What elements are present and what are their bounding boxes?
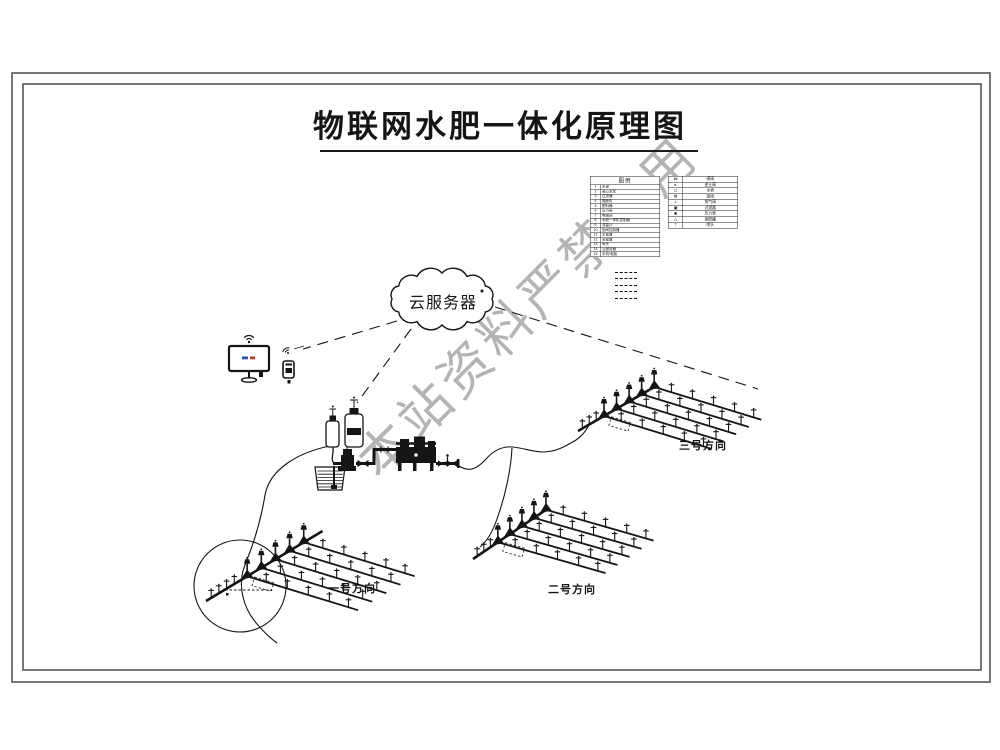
monitor-icon bbox=[229, 336, 269, 383]
field-grid-1 bbox=[206, 523, 415, 610]
legend-row: 15手机/电脑 bbox=[590, 252, 660, 257]
legend-header: 图例 bbox=[590, 176, 660, 185]
detail-circle bbox=[194, 540, 286, 632]
legend-table-left: 图例 1水源2离心水泵3过滤器4施肥机5肥料桶6压力表7电磁阀8水肥一体机控制器… bbox=[590, 176, 660, 257]
field-grid-3 bbox=[578, 368, 761, 449]
wifi-icon bbox=[244, 336, 254, 344]
line-type-sample bbox=[615, 278, 637, 279]
fertigation-station bbox=[315, 397, 460, 491]
field-grid-2 bbox=[473, 490, 654, 573]
legend-table-right: ⋈闸阀▸逆止阀◻水表⊠球阀⊥排气阀▣过滤器◉压力表△施肥罐⊤喷头 bbox=[668, 176, 738, 228]
field-label-3: 三号方向 bbox=[679, 437, 727, 453]
outlet-valves bbox=[436, 454, 460, 468]
fertigation-machine-icon bbox=[396, 437, 436, 472]
page-title: 物联网水肥一体化原理图 bbox=[313, 101, 687, 146]
line-type-sample bbox=[615, 272, 637, 273]
line-type-sample bbox=[615, 298, 637, 299]
wifi-icon bbox=[282, 347, 292, 356]
sheet-frames bbox=[12, 73, 990, 682]
title-underline bbox=[320, 150, 698, 152]
line-type-sample bbox=[615, 291, 637, 292]
field-label-1: 一号方向 bbox=[328, 580, 376, 596]
cloud-server-label: 云服务器 bbox=[409, 289, 477, 313]
drawing-sheet: 本站资料严禁盗用 物联网水肥一体化原理图 云服务器 一号方向 二号方向 三号方向… bbox=[0, 0, 1000, 750]
legend-row: ⊤喷头 bbox=[668, 222, 738, 228]
detail-annotation bbox=[225, 590, 272, 596]
line-type-sample bbox=[615, 285, 637, 286]
cloud-link-dashed bbox=[303, 307, 758, 403]
field-label-2: 二号方向 bbox=[548, 581, 596, 597]
phone-icon bbox=[282, 346, 304, 384]
legend-line-samples bbox=[615, 272, 637, 304]
station-piping bbox=[356, 447, 399, 468]
